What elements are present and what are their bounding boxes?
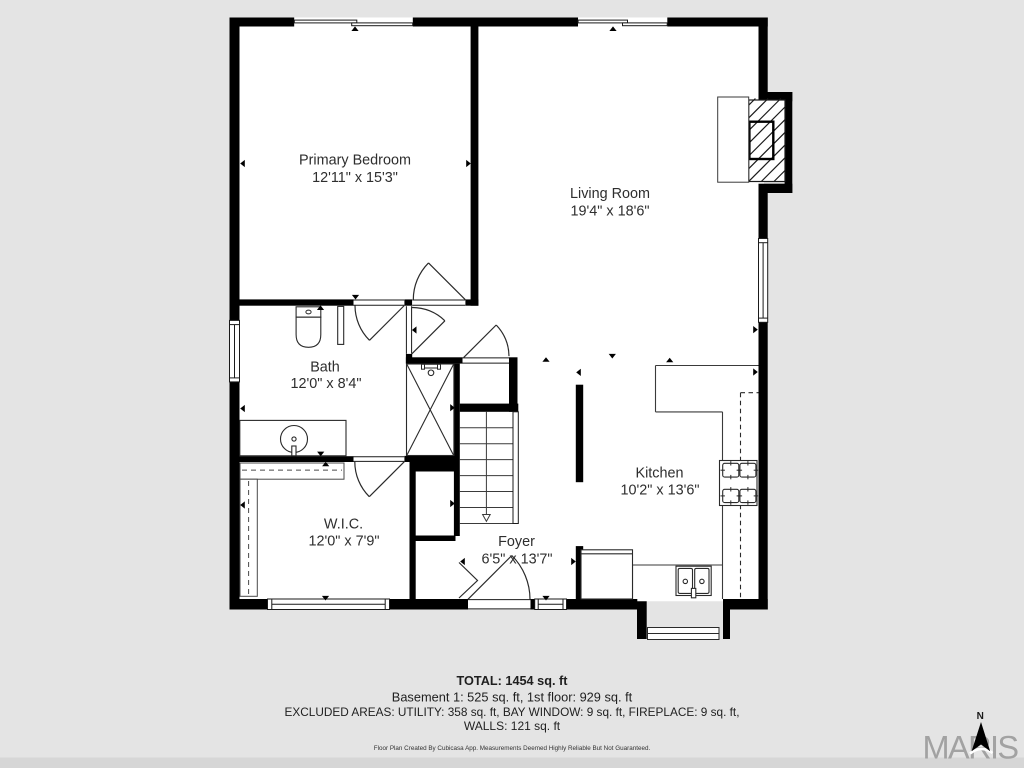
svg-text:TOTAL: 1454 sq. ft: TOTAL: 1454 sq. ft <box>457 674 569 688</box>
svg-text:12'11" x 15'3": 12'11" x 15'3" <box>312 170 398 186</box>
svg-text:12'0" x 7'9": 12'0" x 7'9" <box>309 534 380 550</box>
svg-text:Kitchen: Kitchen <box>636 465 684 481</box>
svg-text:N: N <box>977 711 984 722</box>
svg-text:EXCLUDED AREAS: UTILITY: 358 s: EXCLUDED AREAS: UTILITY: 358 sq. ft, BAY… <box>285 705 740 719</box>
svg-text:Living Room: Living Room <box>570 186 650 202</box>
svg-text:19'4" x 18'6": 19'4" x 18'6" <box>571 204 650 220</box>
svg-text:6'5" x 13'7": 6'5" x 13'7" <box>482 552 553 568</box>
svg-text:Foyer: Foyer <box>498 534 535 550</box>
svg-text:WALLS: 121 sq. ft: WALLS: 121 sq. ft <box>464 719 561 733</box>
svg-text:Basement 1: 525 sq. ft, 1st fl: Basement 1: 525 sq. ft, 1st floor: 929 s… <box>392 690 633 705</box>
svg-text:Primary Bedroom: Primary Bedroom <box>299 153 411 169</box>
svg-text:W.I.C.: W.I.C. <box>324 517 363 533</box>
svg-text:MARIS: MARIS <box>923 730 1019 766</box>
svg-text:10'2" x 13'6": 10'2" x 13'6" <box>621 482 700 498</box>
svg-text:12'0" x 8'4": 12'0" x 8'4" <box>291 376 362 392</box>
svg-text:Floor Plan Created By Cubicasa: Floor Plan Created By Cubicasa App. Meas… <box>374 745 651 752</box>
svg-text:Bath: Bath <box>310 360 340 376</box>
